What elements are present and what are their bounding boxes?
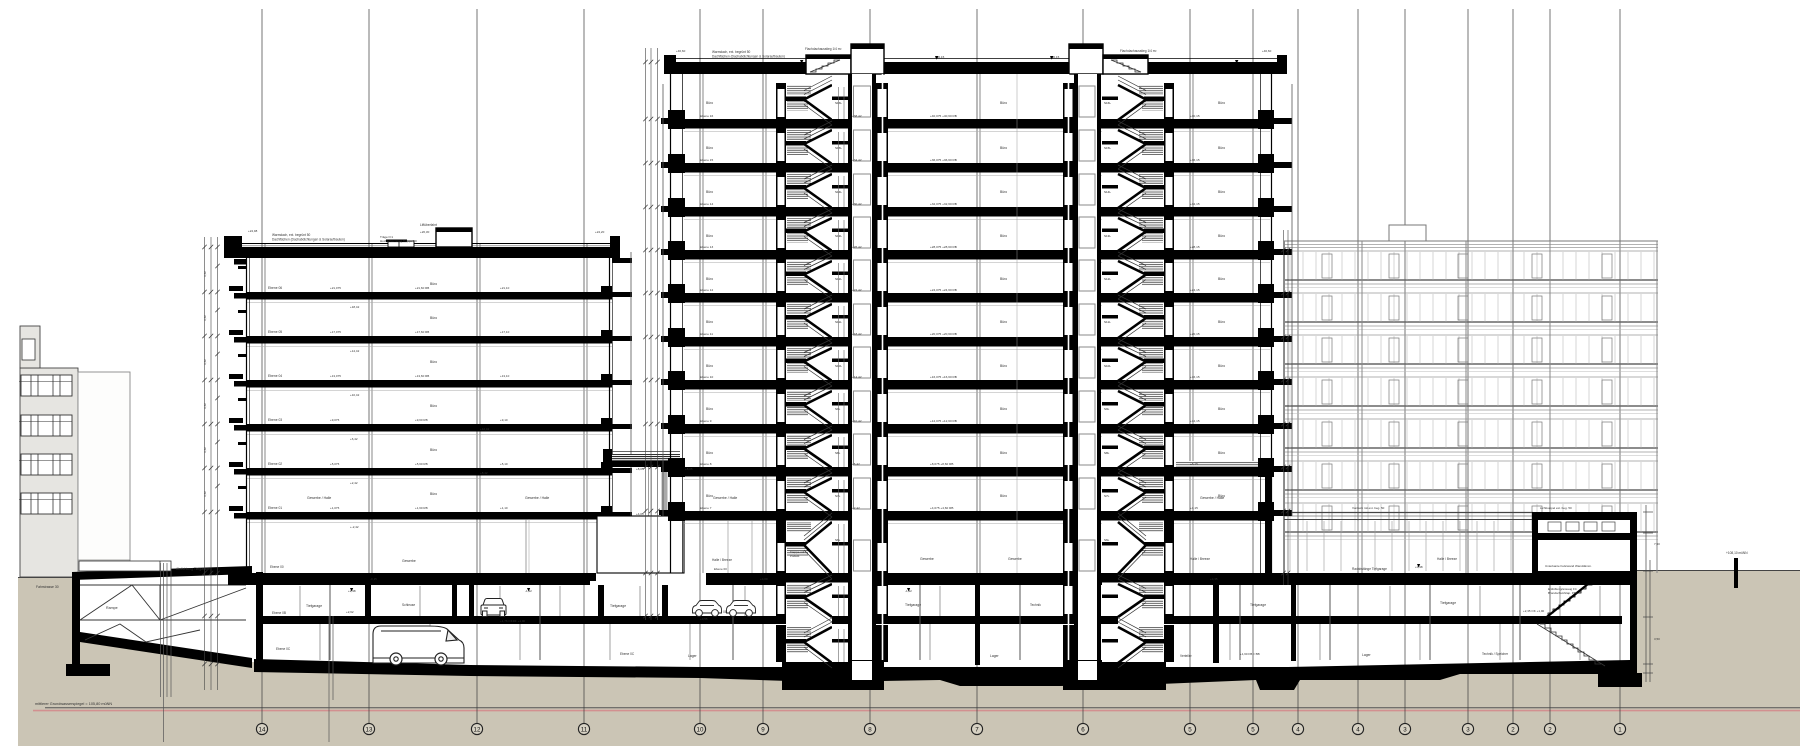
svg-text:Gewerbe / Halle: Gewerbe / Halle xyxy=(525,496,549,500)
svg-text:Schleuse: Schleuse xyxy=(402,603,415,607)
svg-text:2: 2 xyxy=(1511,726,1515,733)
svg-text:3,50: 3,50 xyxy=(1654,637,1660,641)
svg-text:+26,42: +26,42 xyxy=(852,245,862,249)
svg-text:+6,42: +6,42 xyxy=(852,462,860,466)
svg-text:3: 3 xyxy=(1403,726,1407,733)
svg-text:14: 14 xyxy=(259,726,266,733)
svg-text:Büro: Büro xyxy=(1000,277,1007,281)
svg-text:Technik / Speicher: Technik / Speicher xyxy=(1482,652,1509,656)
svg-text:+5,60 RB: +5,60 RB xyxy=(415,462,428,466)
svg-text:Büro: Büro xyxy=(1000,494,1007,498)
svg-text:+21,075: +21,075 xyxy=(330,286,341,290)
svg-text:5: 5 xyxy=(1188,726,1192,733)
svg-text:+-2,42: +-2,42 xyxy=(350,525,359,529)
svg-text:+2,35 OK +1,90: +2,35 OK +1,90 xyxy=(1523,609,1545,613)
svg-text:S8L: S8L xyxy=(1104,451,1110,455)
svg-text:7: 7 xyxy=(975,726,979,733)
svg-text:S13L: S13L xyxy=(1104,234,1111,238)
svg-text:Lager: Lager xyxy=(990,654,1000,658)
svg-text:Abdichtung Tiefgarage: Abdichtung Tiefgarage xyxy=(176,567,210,571)
svg-text:Radabstänge Tiefgarage: Radabstänge Tiefgarage xyxy=(1352,567,1387,571)
svg-text:Büro: Büro xyxy=(1000,451,1007,455)
svg-text:+2,62: +2,62 xyxy=(346,610,354,614)
svg-text:Ebene 0C: Ebene 0C xyxy=(276,647,291,651)
svg-text:Ebene 7: Ebene 7 xyxy=(700,506,712,510)
svg-text:Ebene 04: Ebene 04 xyxy=(268,374,282,378)
svg-text:Gewerbe: Gewerbe xyxy=(402,559,416,563)
svg-text:Tiefgarage: Tiefgarage xyxy=(1250,603,1266,607)
svg-text:Ebene 14: Ebene 14 xyxy=(700,202,714,206)
svg-text:Büro: Büro xyxy=(430,492,437,496)
svg-text:Fahrstrasse 30: Fahrstrasse 30 xyxy=(36,585,59,589)
svg-text:+2,42: +2,42 xyxy=(852,506,860,510)
svg-text:+24,20: +24,20 xyxy=(595,230,605,234)
svg-text:+16,15: +16,15 xyxy=(1190,375,1200,379)
svg-text:Büro: Büro xyxy=(706,277,713,281)
svg-text:Warmdach, ext. begrünt 50: Warmdach, ext. begrünt 50 xyxy=(272,233,311,237)
svg-text:+13,60 RB: +13,60 RB xyxy=(415,374,429,378)
svg-text:Ebene 01: Ebene 01 xyxy=(268,506,282,510)
svg-text:Büro: Büro xyxy=(1218,364,1225,368)
svg-text:+46,60: +46,60 xyxy=(1262,49,1272,53)
svg-text:3,42: 3,42 xyxy=(203,447,207,453)
svg-text:Büro: Büro xyxy=(1000,101,1007,105)
svg-text:Büro: Büro xyxy=(1000,320,1007,324)
svg-text:Halle / Breeze: Halle / Breeze xyxy=(1190,557,1210,561)
svg-text:+21,10: +21,10 xyxy=(500,286,510,290)
svg-text:+40,075 +40,60 RB: +40,075 +40,60 RB xyxy=(930,114,957,118)
svg-text:+32,075 +32,60 RB: +32,075 +32,60 RB xyxy=(930,202,957,206)
svg-text:+1,10: +1,10 xyxy=(500,506,508,510)
svg-text:3,42: 3,42 xyxy=(203,491,207,497)
svg-text:+24,15: +24,15 xyxy=(1190,288,1200,292)
svg-text:+13,075: +13,075 xyxy=(330,374,341,378)
svg-text:S12L: S12L xyxy=(1104,277,1111,281)
svg-text:Tiefgarage: Tiefgarage xyxy=(306,604,322,608)
svg-text:Büro: Büro xyxy=(430,360,437,364)
svg-text:+13,10: +13,10 xyxy=(500,374,510,378)
svg-text:+40,15: +40,15 xyxy=(1190,114,1200,118)
svg-text:+18,42: +18,42 xyxy=(852,332,862,336)
svg-text:mittlerer Grundwasserspiegel =: mittlerer Grundwasserspiegel = 105,80 mü… xyxy=(35,702,112,706)
svg-text:Halle / Breeze: Halle / Breeze xyxy=(1437,557,1457,561)
svg-text:Büro: Büro xyxy=(1000,190,1007,194)
svg-text:10: 10 xyxy=(697,726,704,733)
svg-text:+24,98: +24,98 xyxy=(248,229,258,233)
svg-text:+10,42: +10,42 xyxy=(852,419,862,423)
svg-text:9: 9 xyxy=(761,726,765,733)
svg-text:S10L: S10L xyxy=(1104,364,1111,368)
svg-text:S7L: S7L xyxy=(1104,494,1110,498)
svg-text:+18,42: +18,42 xyxy=(350,305,360,309)
svg-text:Lichtkuppel ext. beg. 50: Lichtkuppel ext. beg. 50 xyxy=(1540,506,1572,510)
svg-text:+30,42: +30,42 xyxy=(852,202,862,206)
svg-text:Büro: Büro xyxy=(1000,234,1007,238)
svg-text:Hochschürzstieg Treppe F0: Hochschürzstieg Treppe F0 xyxy=(380,239,417,243)
svg-text:+12,075 +12,60 RB: +12,075 +12,60 RB xyxy=(930,419,957,423)
svg-text:Büro: Büro xyxy=(1218,146,1225,150)
svg-text:Ebene 03: Ebene 03 xyxy=(268,418,282,422)
svg-text:Gewerbe / Halle: Gewerbe / Halle xyxy=(307,496,331,500)
svg-text:Büro: Büro xyxy=(706,190,713,194)
svg-text:Tiefgarage: Tiefgarage xyxy=(610,604,626,608)
svg-text:12: 12 xyxy=(474,726,481,733)
svg-text:+17,075: +17,075 xyxy=(330,330,341,334)
svg-text:Büro: Büro xyxy=(1000,146,1007,150)
svg-text:6: 6 xyxy=(1081,726,1085,733)
svg-text:+26,30: +26,30 xyxy=(420,230,430,234)
svg-text:Büro: Büro xyxy=(430,448,437,452)
svg-text:3: 3 xyxy=(1466,726,1470,733)
svg-text:+28,15: +28,15 xyxy=(1190,245,1200,249)
svg-text:Liftüberfahrt: Liftüberfahrt xyxy=(420,223,437,227)
svg-text:Büro: Büro xyxy=(706,101,713,105)
svg-text:7,50: 7,50 xyxy=(1654,542,1660,546)
svg-text:+4,075 +4,60 RB: +4,075 +4,60 RB xyxy=(930,506,953,510)
svg-text:Gewerbe / Halle: Gewerbe / Halle xyxy=(713,496,737,500)
svg-text:Ebene 00: Ebene 00 xyxy=(714,567,727,571)
svg-text:4: 4 xyxy=(1296,726,1300,733)
svg-text:Büro: Büro xyxy=(1218,451,1225,455)
svg-text:S6L: S6L xyxy=(835,538,841,542)
svg-text:Ebene 00: Ebene 00 xyxy=(270,565,284,569)
svg-text:3,42: 3,42 xyxy=(203,315,207,321)
svg-text:Verteiler: Verteiler xyxy=(1180,654,1193,658)
svg-text:Dachflächen (Dachabdichtungen: Dachflächen (Dachabdichtungen & Solarauf… xyxy=(272,238,345,242)
svg-text:+9,60 RB: +9,60 RB xyxy=(415,418,428,422)
svg-text:Büro: Büro xyxy=(706,364,713,368)
svg-text:Büro: Büro xyxy=(1218,234,1225,238)
svg-text:11: 11 xyxy=(581,726,588,733)
svg-text:3,42: 3,42 xyxy=(203,359,207,365)
svg-text:+6,42: +6,42 xyxy=(350,437,358,441)
svg-text:3,42: 3,42 xyxy=(203,271,207,277)
svg-text:S9L: S9L xyxy=(835,407,841,411)
svg-text:5: 5 xyxy=(1251,726,1255,733)
svg-text:+8,15: +8,15 xyxy=(1190,462,1198,466)
svg-text:13: 13 xyxy=(366,726,373,733)
svg-text:Vordach mit ext. beg. 50: Vordach mit ext. beg. 50 xyxy=(1352,506,1385,510)
svg-text:+20,15: +20,15 xyxy=(1190,332,1200,336)
svg-text:Tiefgarage: Tiefgarage xyxy=(1440,601,1456,605)
svg-text:+22,42: +22,42 xyxy=(852,288,862,292)
svg-text:Büro: Büro xyxy=(1218,407,1225,411)
svg-text:+4,05: +4,05 xyxy=(636,512,644,516)
svg-text:Gewerbe: Gewerbe xyxy=(920,557,934,561)
svg-text:+1,60 FB = BB: +1,60 FB = BB xyxy=(1240,652,1260,656)
svg-text:+12,15: +12,15 xyxy=(1190,419,1200,423)
svg-text:2: 2 xyxy=(1548,726,1552,733)
svg-text:S14L: S14L xyxy=(1104,190,1111,194)
svg-text:Ebene 8: Ebene 8 xyxy=(700,462,712,466)
svg-text:+10,42: +10,42 xyxy=(350,393,360,397)
svg-text:Ebene 0B: Ebene 0B xyxy=(272,611,286,615)
svg-text:+0,55: +0,55 xyxy=(700,617,708,621)
svg-text:Büro: Büro xyxy=(706,234,713,238)
svg-text:Büro: Büro xyxy=(1218,277,1225,281)
svg-text:+8,075 +8,60 RB: +8,075 +8,60 RB xyxy=(930,462,953,466)
svg-text:S6L: S6L xyxy=(1104,538,1110,542)
svg-text:+38,42: +38,42 xyxy=(852,114,862,118)
svg-text:Büro: Büro xyxy=(1000,407,1007,411)
svg-text:Warmdach, ext. begrünt 50: Warmdach, ext. begrünt 50 xyxy=(712,50,751,54)
svg-text:+21,60 RB: +21,60 RB xyxy=(415,286,429,290)
svg-text:Büro: Büro xyxy=(706,407,713,411)
svg-text:Podest: Podest xyxy=(790,554,800,558)
svg-text:Ebene 9: Ebene 9 xyxy=(700,419,712,423)
svg-text:Ebene 02: Ebene 02 xyxy=(268,462,282,466)
svg-text:Ebene 05: Ebene 05 xyxy=(268,330,282,334)
svg-text:S8L: S8L xyxy=(835,451,841,455)
svg-text:Büro: Büro xyxy=(1218,320,1225,324)
svg-text:+2,42: +2,42 xyxy=(350,481,358,485)
svg-text:+20,075 +20,60 RB: +20,075 +20,60 RB xyxy=(930,332,957,336)
svg-text:Halle / Breeze: Halle / Breeze xyxy=(712,558,732,562)
svg-text:Büro: Büro xyxy=(706,146,713,150)
svg-text:Rampe: Rampe xyxy=(106,606,118,610)
svg-text:Flachdachausstieg 1/4 m²: Flachdachausstieg 1/4 m² xyxy=(805,47,842,51)
svg-text:Gewerbe: Gewerbe xyxy=(1008,557,1022,561)
svg-text:+108,10 müNN: +108,10 müNN xyxy=(1726,551,1748,555)
svg-text:+14,42: +14,42 xyxy=(350,349,360,353)
svg-text:+1,76 OKRF +1,90: +1,76 OKRF +1,90 xyxy=(500,619,526,623)
svg-text:Dachflächen (Dachabdichtungen: Dachflächen (Dachabdichtungen & Solarauf… xyxy=(712,55,785,59)
svg-text:+5,10: +5,10 xyxy=(500,462,508,466)
svg-text:3,42: 3,42 xyxy=(203,403,207,409)
svg-text:+12,42: +12,42 xyxy=(480,427,490,431)
svg-text:Büro: Büro xyxy=(430,404,437,408)
svg-text:Büro: Büro xyxy=(430,316,437,320)
svg-text:+8,05: +8,05 xyxy=(636,467,644,471)
svg-text:Unterkante Fels/wand Wanddämm.: Unterkante Fels/wand Wanddämm. xyxy=(1545,564,1592,568)
svg-text:1: 1 xyxy=(1618,726,1622,733)
svg-text:+9,10: +9,10 xyxy=(500,418,508,422)
svg-text:Lager: Lager xyxy=(688,654,698,658)
svg-text:Flachdachausstieg 1/4 m²: Flachdachausstieg 1/4 m² xyxy=(1120,49,1157,53)
svg-text:+5,075: +5,075 xyxy=(330,462,340,466)
svg-text:+16,075 +16,60 RB: +16,075 +16,60 RB xyxy=(930,375,957,379)
svg-text:Ebene 15: Ebene 15 xyxy=(700,158,714,162)
svg-text:+17,10: +17,10 xyxy=(500,330,510,334)
svg-text:+8,42: +8,42 xyxy=(480,471,488,475)
svg-text:Lager: Lager xyxy=(1362,653,1372,657)
svg-text:Ebene 13: Ebene 13 xyxy=(700,245,714,249)
svg-text:S11L: S11L xyxy=(1104,320,1111,324)
svg-text:+8,05: +8,05 xyxy=(685,467,693,471)
svg-text:+14,42: +14,42 xyxy=(852,375,862,379)
svg-text:+9,075: +9,075 xyxy=(330,418,340,422)
svg-text:Büro: Büro xyxy=(430,282,437,286)
svg-text:S9L: S9L xyxy=(1104,407,1110,411)
svg-text:Tiefgarage: Tiefgarage xyxy=(905,603,921,607)
svg-text:Büro: Büro xyxy=(1000,364,1007,368)
svg-text:+4,15: +4,15 xyxy=(1190,506,1198,510)
svg-text:S15L: S15L xyxy=(1104,146,1111,150)
svg-text:+34,42: +34,42 xyxy=(852,158,862,162)
svg-text:+46,60: +46,60 xyxy=(676,49,686,53)
svg-text:+17,60 RB: +17,60 RB xyxy=(415,330,429,334)
svg-text:Ebene 16: Ebene 16 xyxy=(700,114,714,118)
svg-text:Büro: Büro xyxy=(1218,190,1225,194)
svg-text:+32,15: +32,15 xyxy=(1190,202,1200,206)
svg-text:Ebene 0C: Ebene 0C xyxy=(620,652,635,656)
svg-text:+36,15: +36,15 xyxy=(1190,158,1200,162)
svg-text:Technik: Technik xyxy=(1030,603,1041,607)
svg-text:+36,075 +36,60 RB: +36,075 +36,60 RB xyxy=(930,158,957,162)
svg-text:S7L: S7L xyxy=(835,494,841,498)
svg-text:Büro: Büro xyxy=(706,451,713,455)
svg-text:8: 8 xyxy=(868,726,872,733)
svg-text:4: 4 xyxy=(1356,726,1360,733)
svg-text:Ebene 10: Ebene 10 xyxy=(700,375,714,379)
svg-text:Ebene 06: Ebene 06 xyxy=(268,286,282,290)
svg-text:+1,075: +1,075 xyxy=(330,506,340,510)
svg-text:+24,075 +24,60 RB: +24,075 +24,60 RB xyxy=(930,288,957,292)
svg-text:Brandschutzklap. F90: Brandschutzklap. F90 xyxy=(1548,591,1577,595)
svg-text:Büro: Büro xyxy=(1218,101,1225,105)
svg-text:+1,60 RB: +1,60 RB xyxy=(415,506,428,510)
svg-text:Ebene 12: Ebene 12 xyxy=(700,288,714,292)
svg-text:S16L: S16L xyxy=(1104,101,1111,105)
svg-text:Büro: Büro xyxy=(706,320,713,324)
svg-text:+28,075 +28,60 RB: +28,075 +28,60 RB xyxy=(930,245,957,249)
svg-text:Ebene 11: Ebene 11 xyxy=(700,332,713,336)
svg-text:Gewerbe / Halle: Gewerbe / Halle xyxy=(1200,496,1224,500)
